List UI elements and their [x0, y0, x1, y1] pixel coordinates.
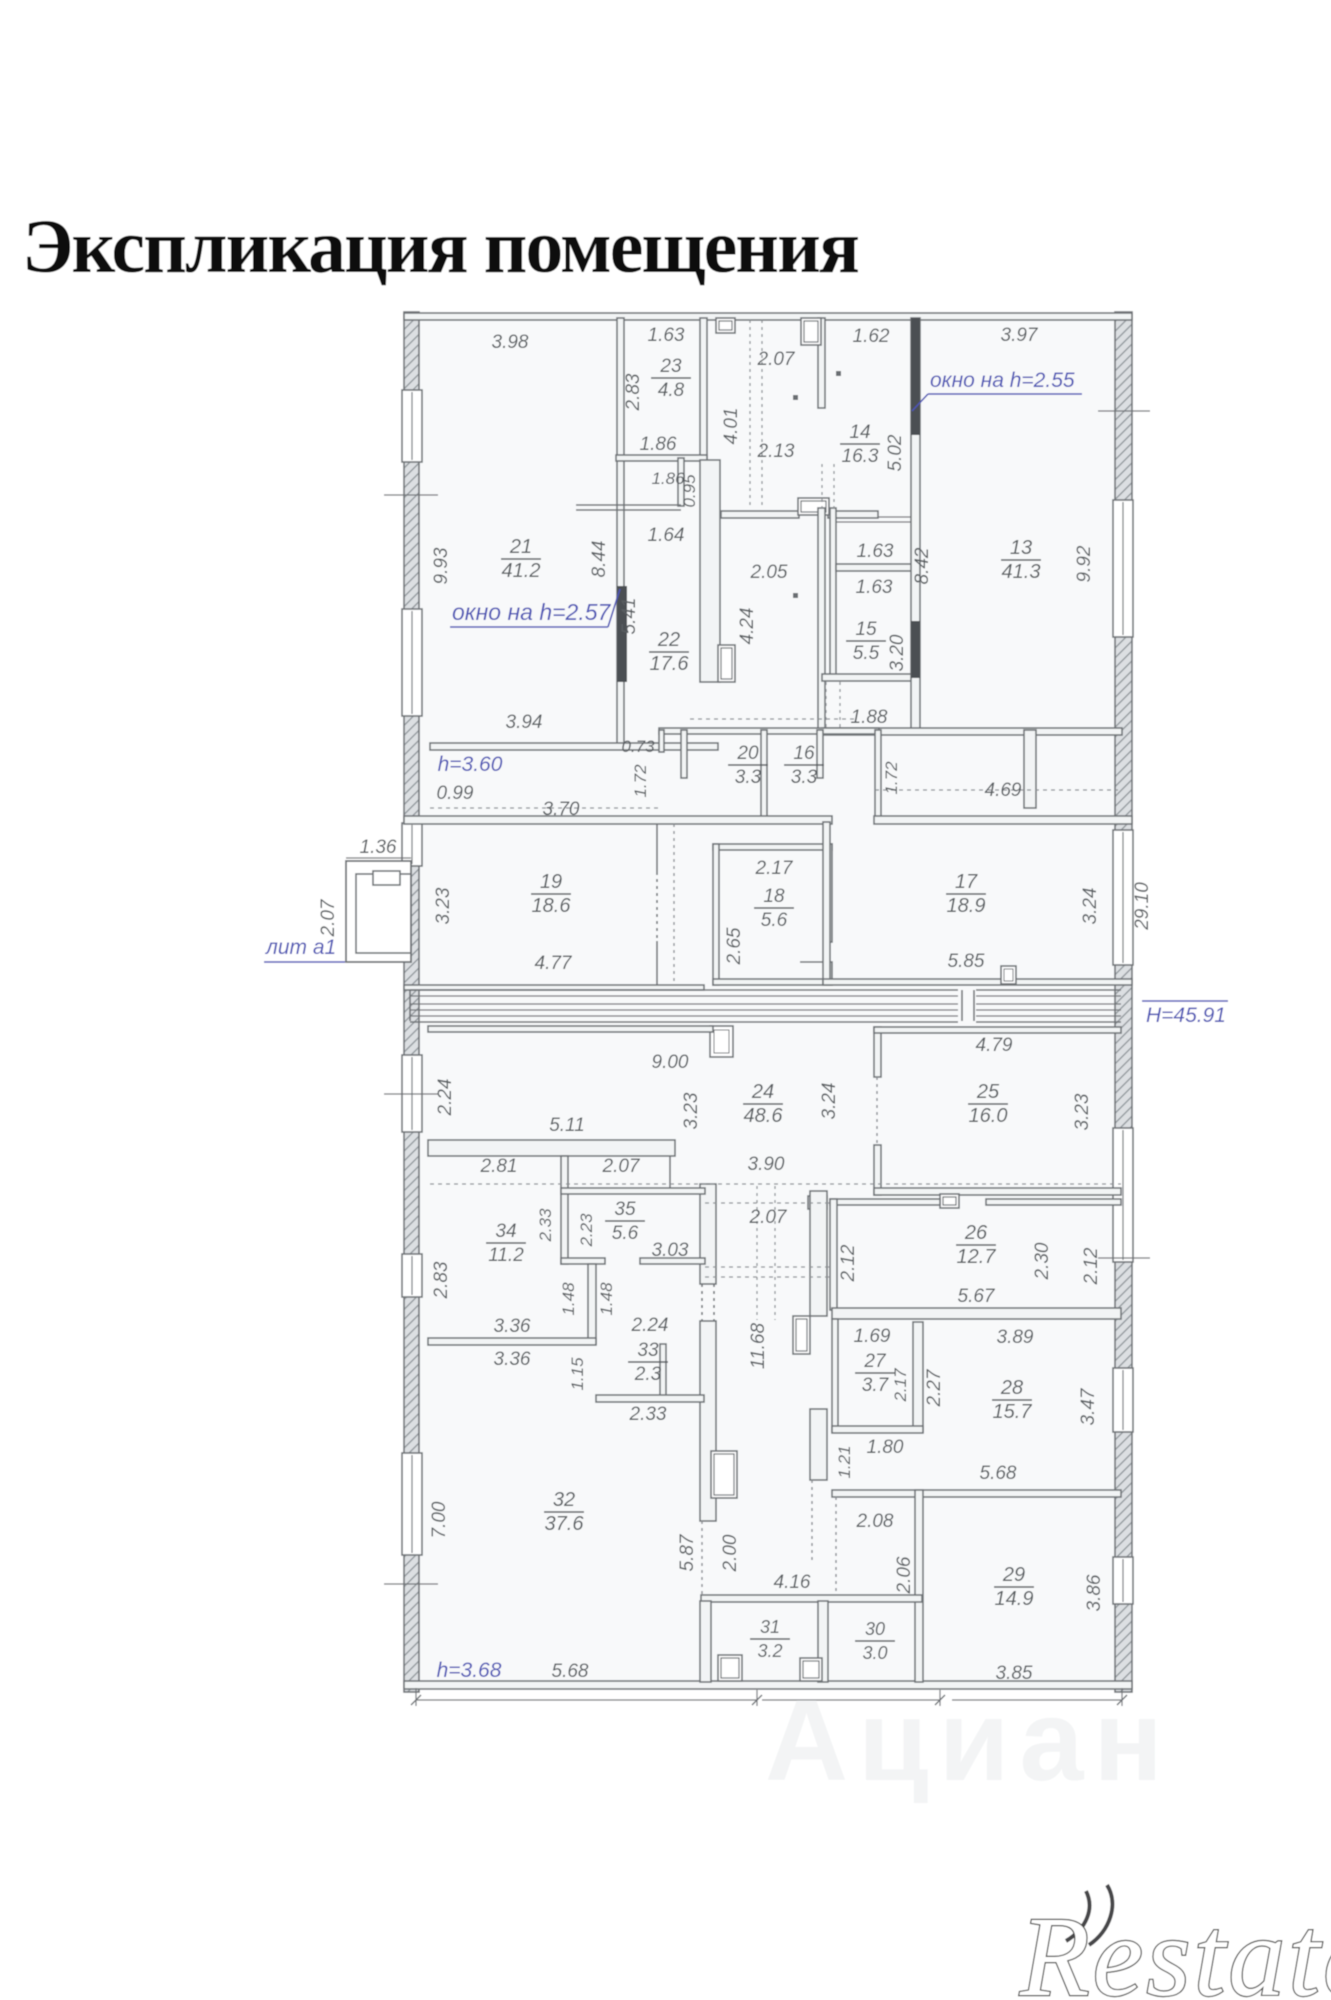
svg-text:3.23: 3.23	[1072, 1093, 1093, 1130]
svg-text:1.64: 1.64	[648, 525, 685, 546]
svg-text:16.0: 16.0	[969, 1105, 1008, 1127]
svg-text:2.05: 2.05	[750, 562, 788, 583]
svg-text:2.08: 2.08	[856, 1511, 894, 1532]
svg-text:Restate: Restate	[1019, 1893, 1331, 2000]
svg-text:27: 27	[863, 1351, 887, 1372]
svg-text:1.21: 1.21	[835, 1445, 854, 1478]
svg-text:12.7: 12.7	[957, 1246, 997, 1268]
svg-text:29: 29	[1002, 1564, 1025, 1586]
svg-text:2.33: 2.33	[536, 1208, 555, 1243]
svg-text:28: 28	[1000, 1377, 1023, 1399]
svg-text:3.70: 3.70	[543, 799, 580, 820]
svg-text:5.5: 5.5	[853, 643, 880, 664]
svg-text:8.42: 8.42	[912, 547, 933, 584]
svg-text:20: 20	[736, 743, 759, 764]
svg-text:2.07: 2.07	[318, 898, 339, 937]
svg-text:3.86: 3.86	[1084, 1574, 1105, 1611]
svg-text:31: 31	[760, 1617, 780, 1637]
svg-text:2.17: 2.17	[755, 858, 794, 879]
svg-text:3.23: 3.23	[433, 887, 454, 924]
svg-text:4.8: 4.8	[658, 380, 685, 401]
svg-text:1.86: 1.86	[640, 434, 677, 455]
svg-text:5.68: 5.68	[980, 1463, 1017, 1484]
svg-text:5.02: 5.02	[885, 434, 906, 471]
svg-text:3.24: 3.24	[1080, 888, 1101, 925]
svg-text:4.77: 4.77	[535, 953, 573, 974]
svg-text:18.9: 18.9	[947, 895, 986, 917]
svg-text:3.36: 3.36	[494, 1316, 531, 1337]
svg-text:15: 15	[855, 619, 877, 640]
svg-text:1.48: 1.48	[597, 1282, 616, 1316]
svg-text:3.36: 3.36	[494, 1349, 531, 1370]
svg-text:1.36: 1.36	[360, 837, 397, 858]
svg-text:25: 25	[976, 1081, 1000, 1103]
svg-text:4.01: 4.01	[721, 408, 742, 445]
svg-text:5.85: 5.85	[948, 951, 985, 972]
svg-text:1.63: 1.63	[857, 541, 894, 562]
svg-text:4.16: 4.16	[774, 1572, 811, 1593]
svg-text:3.89: 3.89	[997, 1327, 1034, 1348]
svg-text:9.92: 9.92	[1074, 545, 1095, 582]
svg-text:5.68: 5.68	[552, 1661, 589, 1682]
svg-text:3.20: 3.20	[887, 634, 908, 671]
svg-text:2.13: 2.13	[757, 441, 795, 462]
svg-text:3.2: 3.2	[757, 1641, 782, 1661]
svg-text:2.07: 2.07	[602, 1156, 641, 1177]
svg-text:4.79: 4.79	[976, 1035, 1013, 1056]
svg-text:3.47: 3.47	[1078, 1387, 1099, 1425]
svg-text:5.41: 5.41	[619, 598, 640, 635]
svg-text:5.6: 5.6	[761, 910, 788, 931]
svg-text:2.06: 2.06	[894, 1556, 915, 1594]
svg-text:Экспликация помещения: Экспликация помещения	[22, 205, 860, 289]
svg-text:2.24: 2.24	[435, 1079, 456, 1117]
svg-text:18.6: 18.6	[532, 895, 572, 917]
svg-text:2.83: 2.83	[431, 1261, 452, 1299]
svg-text:2.12: 2.12	[838, 1244, 859, 1282]
svg-text:5.6: 5.6	[612, 1223, 639, 1244]
svg-text:30: 30	[865, 1619, 885, 1639]
svg-text:2.27: 2.27	[924, 1368, 945, 1407]
svg-text:3.90: 3.90	[748, 1154, 785, 1175]
svg-text:24: 24	[751, 1081, 774, 1103]
svg-text:3.24: 3.24	[819, 1083, 840, 1120]
svg-text:5.87: 5.87	[677, 1533, 698, 1571]
svg-text:3.23: 3.23	[681, 1092, 702, 1129]
svg-text:8.44: 8.44	[589, 541, 610, 578]
svg-text:1.72: 1.72	[631, 764, 650, 798]
svg-text:9.93: 9.93	[431, 547, 452, 584]
svg-text:7.00: 7.00	[429, 1501, 450, 1538]
svg-text:17: 17	[955, 871, 978, 893]
svg-text:2.00: 2.00	[720, 1534, 741, 1572]
svg-text:2.24: 2.24	[631, 1315, 669, 1336]
svg-text:13: 13	[1010, 537, 1032, 559]
svg-text:1.63: 1.63	[648, 325, 685, 346]
svg-text:0.99: 0.99	[437, 783, 474, 804]
svg-text:h=3.60: h=3.60	[438, 753, 503, 776]
svg-text:2.3: 2.3	[634, 1364, 662, 1385]
svg-text:Ациан: Ациан	[765, 1677, 1173, 1805]
svg-text:3.03: 3.03	[652, 1240, 689, 1261]
svg-text:3.97: 3.97	[1001, 325, 1039, 346]
svg-text:2.83: 2.83	[623, 373, 644, 411]
svg-text:16.3: 16.3	[842, 446, 879, 467]
svg-text:1.72: 1.72	[882, 761, 901, 795]
svg-text:2.12: 2.12	[1081, 1247, 1102, 1285]
svg-text:34: 34	[495, 1221, 516, 1242]
svg-text:1.69: 1.69	[854, 1326, 891, 1347]
svg-text:лит а1: лит а1	[265, 936, 336, 959]
svg-text:1.62: 1.62	[853, 326, 890, 347]
svg-text:3.94: 3.94	[506, 712, 543, 733]
svg-text:29.10: 29.10	[1132, 882, 1153, 931]
svg-text:окно на h=2.57: окно на h=2.57	[452, 599, 612, 625]
svg-text:4.24: 4.24	[737, 608, 758, 645]
svg-text:26: 26	[964, 1222, 988, 1244]
svg-text:0.73: 0.73	[621, 737, 655, 756]
svg-text:H=45.91: H=45.91	[1146, 1004, 1226, 1027]
svg-text:3.98: 3.98	[492, 332, 529, 353]
svg-text:2.30: 2.30	[1032, 1242, 1053, 1280]
svg-text:2.23: 2.23	[577, 1213, 596, 1248]
svg-text:3.3: 3.3	[791, 767, 818, 788]
svg-text:41.3: 41.3	[1002, 561, 1041, 583]
svg-text:11.68: 11.68	[748, 1323, 769, 1370]
svg-text:1.88: 1.88	[851, 707, 888, 728]
svg-text:32: 32	[553, 1489, 575, 1511]
svg-text:1.48: 1.48	[559, 1282, 578, 1316]
svg-text:35: 35	[614, 1199, 636, 1220]
svg-text:2.07: 2.07	[749, 1207, 788, 1228]
svg-text:2.07: 2.07	[757, 349, 796, 370]
svg-text:3.3: 3.3	[735, 767, 762, 788]
svg-text:18: 18	[763, 886, 785, 907]
svg-text:1.80: 1.80	[867, 1437, 904, 1458]
svg-text:9.00: 9.00	[652, 1052, 689, 1073]
svg-text:48.6: 48.6	[744, 1105, 784, 1127]
svg-text:1.15: 1.15	[568, 1357, 587, 1391]
svg-text:22: 22	[657, 629, 680, 651]
svg-text:4.69: 4.69	[985, 780, 1022, 801]
svg-text:23: 23	[659, 356, 682, 377]
svg-text:16: 16	[793, 743, 815, 764]
svg-text:11.2: 11.2	[488, 1245, 524, 1266]
svg-text:37.6: 37.6	[545, 1513, 585, 1535]
svg-text:2.33: 2.33	[629, 1404, 667, 1425]
svg-text:19: 19	[540, 871, 562, 893]
svg-text:5.67: 5.67	[958, 1286, 996, 1307]
svg-text:41.2: 41.2	[502, 560, 541, 582]
svg-text:3.0: 3.0	[862, 1643, 887, 1663]
svg-text:14.9: 14.9	[995, 1588, 1034, 1610]
svg-text:33: 33	[637, 1340, 659, 1361]
svg-text:окно на h=2.55: окно на h=2.55	[930, 369, 1075, 392]
svg-text:2.81: 2.81	[480, 1156, 518, 1177]
svg-text:5.11: 5.11	[549, 1115, 585, 1136]
svg-text:h=3.68: h=3.68	[437, 1659, 502, 1682]
svg-text:15.7: 15.7	[993, 1401, 1033, 1423]
svg-text:21: 21	[509, 536, 532, 558]
svg-text:3.7: 3.7	[862, 1375, 890, 1396]
svg-text:14: 14	[849, 422, 870, 443]
svg-text:1.63: 1.63	[856, 577, 893, 598]
svg-text:17.6: 17.6	[650, 653, 690, 675]
svg-text:0.95: 0.95	[680, 474, 699, 508]
svg-text:2.65: 2.65	[724, 927, 745, 965]
svg-text:2.17: 2.17	[891, 1368, 910, 1403]
